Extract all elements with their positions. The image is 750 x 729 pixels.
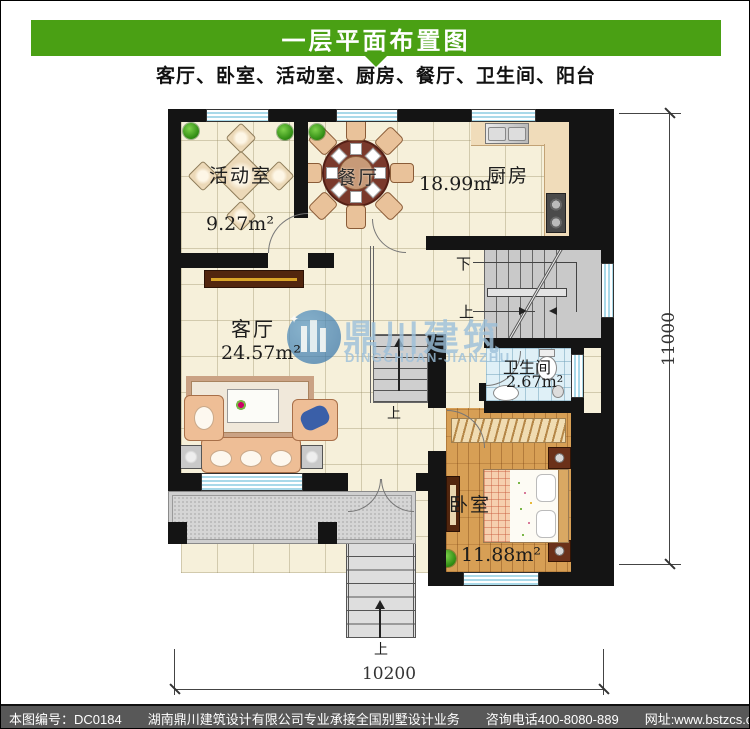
- dining-chair: [346, 205, 366, 229]
- watermark-en: DINGCHUAN-JIANZHU: [345, 350, 511, 365]
- entry-steps-arrow: [379, 608, 381, 638]
- wall-kitchen-stair: [426, 236, 614, 250]
- pillow: [536, 510, 556, 538]
- stair-arrow-icon: [549, 307, 557, 315]
- wall-activity-living: [308, 253, 334, 268]
- window: [206, 109, 269, 122]
- window: [471, 109, 536, 122]
- tv-cabinet: [204, 270, 304, 288]
- kitchen-stove: [546, 193, 566, 233]
- bed-headboard: [558, 470, 568, 542]
- kitchen-label: 厨房: [487, 161, 529, 188]
- entry-up-label: 上: [361, 639, 401, 659]
- wall-bath-bedroom: [484, 401, 571, 413]
- stair-arrow-icon: [519, 307, 527, 315]
- dim-horizontal-label: 10200: [301, 664, 477, 684]
- plant-icon: [309, 124, 325, 140]
- plant-icon: [183, 123, 199, 139]
- armchair-right: [292, 399, 338, 441]
- person-figure: [298, 403, 332, 433]
- window: [571, 354, 584, 398]
- dim-line-horizontal: [174, 689, 604, 690]
- side-table: [180, 445, 202, 469]
- window: [201, 473, 303, 491]
- footer-bar: 本图编号：DC0184 湖南鼎川建筑设计有限公司专业承接全国别墅设计业务 咨询电…: [1, 704, 750, 729]
- room-list-subtitle: 客厅、卧室、活动室、厨房、餐厅、卫生间、阳台: [1, 61, 750, 88]
- window: [601, 263, 614, 318]
- bathroom-area: 2.67m²: [506, 372, 563, 391]
- porch-column: [318, 522, 337, 544]
- blanket-flowers: [518, 482, 520, 484]
- dining-room-label: 餐厅: [337, 163, 379, 190]
- wall-stair-bath: [484, 338, 614, 348]
- side-table: [301, 445, 323, 469]
- sofa-main: [201, 437, 301, 473]
- window: [336, 109, 398, 122]
- bedroom-area: 11.88m²: [461, 544, 541, 566]
- stair-route-line: [576, 262, 577, 312]
- living-room-label: 客厅: [231, 313, 275, 342]
- dim-vertical-label: 11000: [659, 309, 679, 369]
- bedroom-label: 卧室: [449, 490, 491, 517]
- porch: [168, 491, 416, 544]
- kitchen-sink: [485, 123, 529, 144]
- wall-left: [168, 109, 181, 491]
- flight-up-label: 上: [387, 403, 401, 423]
- pillow: [536, 474, 556, 502]
- bed: [483, 469, 569, 543]
- entry-steps: [346, 544, 416, 638]
- wall-entry-nub: [416, 473, 428, 491]
- nightstand: [548, 447, 571, 469]
- sparkle-icon: ✦: [289, 312, 299, 326]
- porch-column: [168, 522, 187, 544]
- wall-activity-living: [168, 253, 268, 268]
- place-setting: [350, 191, 362, 203]
- plant-icon: [277, 124, 293, 140]
- window: [463, 572, 539, 586]
- footer-sheet-no: 本图编号：DC0184: [9, 709, 122, 728]
- wall-bath-left: [479, 383, 486, 401]
- activity-room-area: 9.27m²: [206, 213, 274, 235]
- stair-route-line: [473, 262, 576, 263]
- floor-plan-page: 一层平面布置图 客厅、卧室、活动室、厨房、餐厅、卫生间、阳台 下 上 上: [0, 0, 750, 729]
- living-room-area: 24.57m²: [221, 342, 301, 364]
- entry-steps-arrow-icon: [375, 600, 385, 609]
- wall-bedroom-left: [428, 451, 446, 572]
- footer-website: 网址:www.bstzcs.com: [645, 709, 750, 728]
- page-title: 一层平面布置图: [31, 20, 721, 56]
- place-setting: [350, 143, 362, 155]
- stair-up-label: 上: [459, 301, 474, 322]
- dining-chair: [390, 163, 414, 183]
- stair-down-label: 下: [456, 253, 471, 274]
- armchair-left: [184, 395, 224, 441]
- activity-room-label: 活动室: [209, 161, 272, 188]
- coffee-table: [227, 389, 279, 423]
- wall-activity-dining: [294, 109, 308, 218]
- stair-landing: [561, 246, 601, 338]
- footer-company: 湖南鼎川建筑设计有限公司专业承接全国别墅设计业务: [148, 709, 460, 728]
- stair-handrail: [487, 288, 567, 297]
- wall-bedroom-right: [571, 413, 614, 572]
- nightstand: [548, 540, 571, 562]
- footer-phone: 咨询电话400-8080-889: [486, 709, 619, 728]
